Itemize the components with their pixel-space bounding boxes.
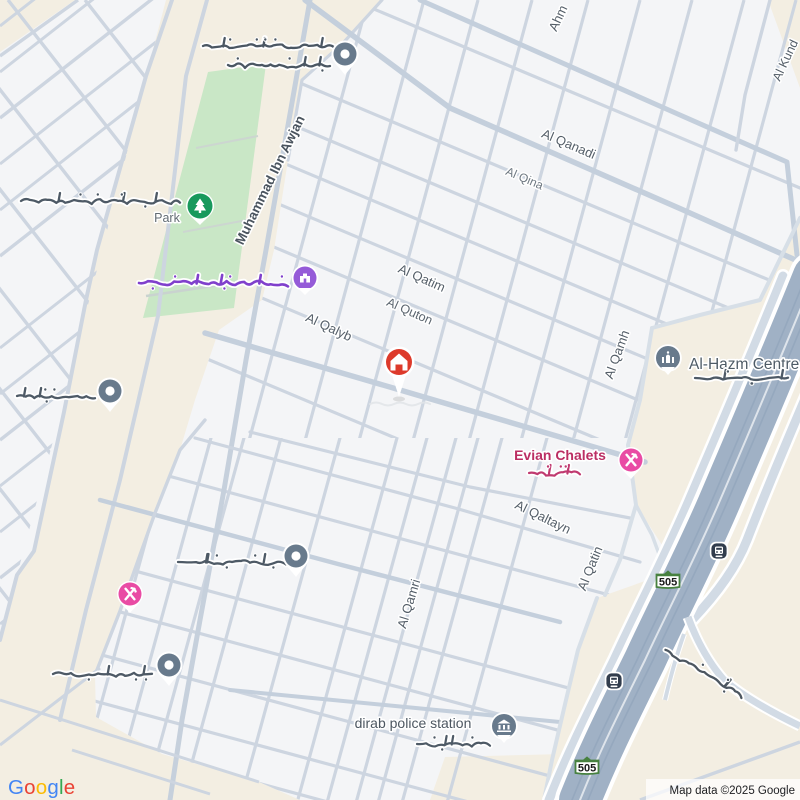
svg-text:Map data ©2025 Google: Map data ©2025 Google bbox=[670, 785, 795, 797]
svg-text:505: 505 bbox=[578, 762, 596, 774]
svg-text:505: 505 bbox=[659, 576, 677, 588]
svg-text:Google: Google bbox=[8, 776, 75, 799]
svg-text:Park: Park bbox=[154, 211, 180, 225]
svg-text:Evian Chalets: Evian Chalets bbox=[514, 447, 606, 463]
svg-text:dirab police station: dirab police station bbox=[355, 715, 472, 731]
